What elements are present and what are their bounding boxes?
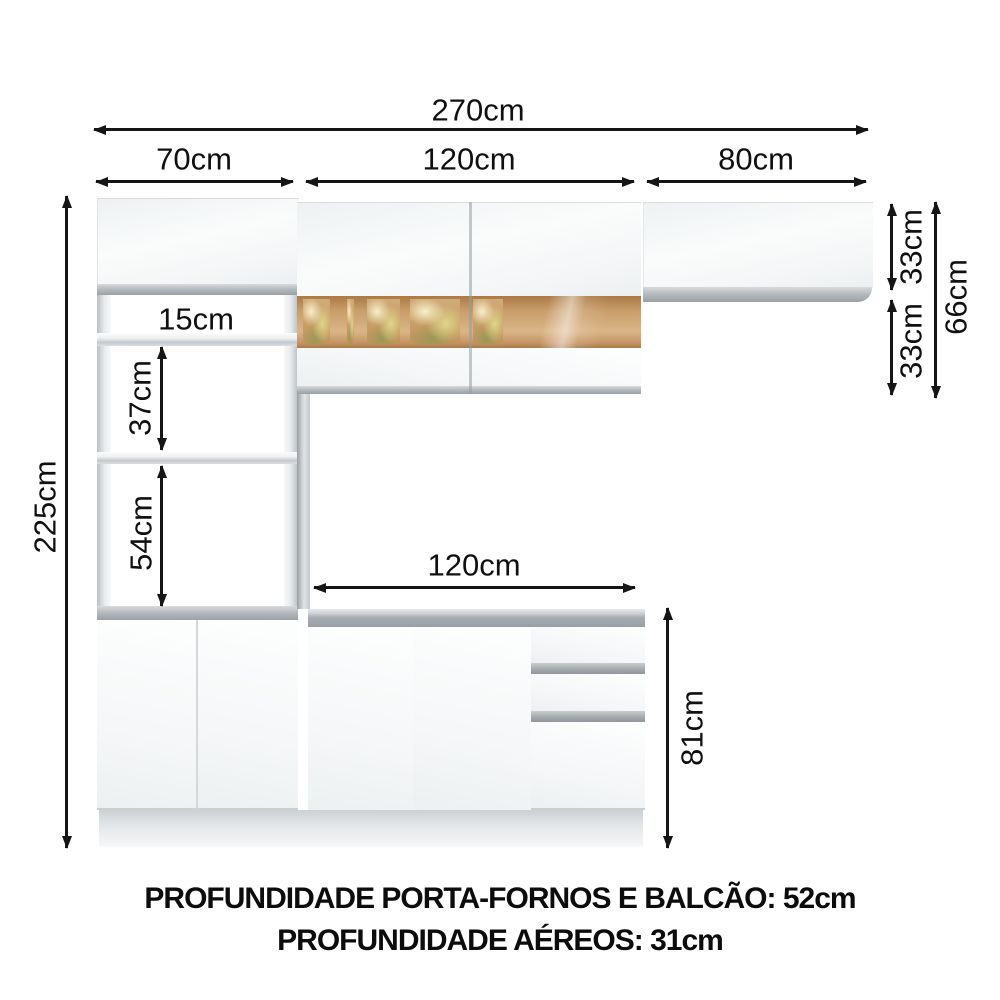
tower-top-door [97,198,299,285]
wall-cabinet-right-front [643,202,873,288]
dim-label-total-width: 270cm [431,95,524,126]
dim-label-niche-top: 15cm [158,304,234,335]
dim-arrow-right-width [647,180,866,183]
glass-pane-4 [410,299,460,344]
dim-arrow-niche-middle [160,347,163,450]
base-cabinet-door-left [308,627,415,812]
tower-top-door-edge [97,284,298,295]
wall-cabinet-middle-door-divider [469,202,472,394]
dim-label-counter-width: 120cm [427,550,520,581]
depth-note-line-1: PROFUNDIDADE PORTA-FORNOS E BALCÃO: 52cm [0,881,1000,917]
dim-arrow-middle-width [306,180,634,183]
glass-pane-5 [473,299,503,344]
tower-base-door-left [97,620,198,810]
wall-cabinet-right-bottom-edge [643,287,872,302]
depth-note-line-2: PROFUNDIDADE AÉREOS: 31cm [0,923,1000,959]
glass-reflection [505,296,641,348]
dim-arrow-tower-width [96,180,293,183]
drawer-front-top [531,627,645,663]
tower-base-top-edge [97,606,298,620]
dim-arrow-niche-bottom [160,466,163,606]
dim-label-upper-right-row: 33cm [896,209,927,285]
dim-arrow-upper-total [934,202,937,398]
dim-label-niche-bottom: 54cm [126,495,157,571]
dim-arrow-counter-width [314,586,635,589]
tower-shelf-lower [97,452,298,464]
plinth [99,810,643,848]
dim-label-niche-middle: 37cm [125,360,156,436]
glass-pane-2 [347,299,354,344]
tower-side-strip [297,392,310,609]
dim-label-total-height: 225cm [30,460,61,553]
glass-pane-1 [303,299,330,344]
dim-arrow-total-width [94,128,868,131]
dim-label-tower-width: 70cm [156,144,232,175]
countertop [308,609,645,627]
dim-label-upper-lower-row: 33cm [896,303,927,379]
dim-arrow-total-height [65,196,68,848]
drawer-front-middle [531,674,645,711]
dim-label-counter-height: 81cm [677,690,708,766]
drawer-divider-bottom [531,711,645,722]
kitchen-dimension-diagram: 270cm 70cm 120cm 80cm 225cm 15cm 37cm 54… [0,0,1000,1000]
dim-label-middle-width: 120cm [422,144,515,175]
drawer-divider-top [531,663,645,674]
dim-label-upper-total: 66cm [941,259,972,335]
glass-pane-3 [367,299,400,344]
tower-base-door-right [198,620,298,810]
dim-label-right-width: 80cm [718,144,794,175]
dim-arrow-counter-height [666,608,669,848]
base-cabinet-door-right [413,627,533,812]
drawer-front-bottom [531,722,645,810]
